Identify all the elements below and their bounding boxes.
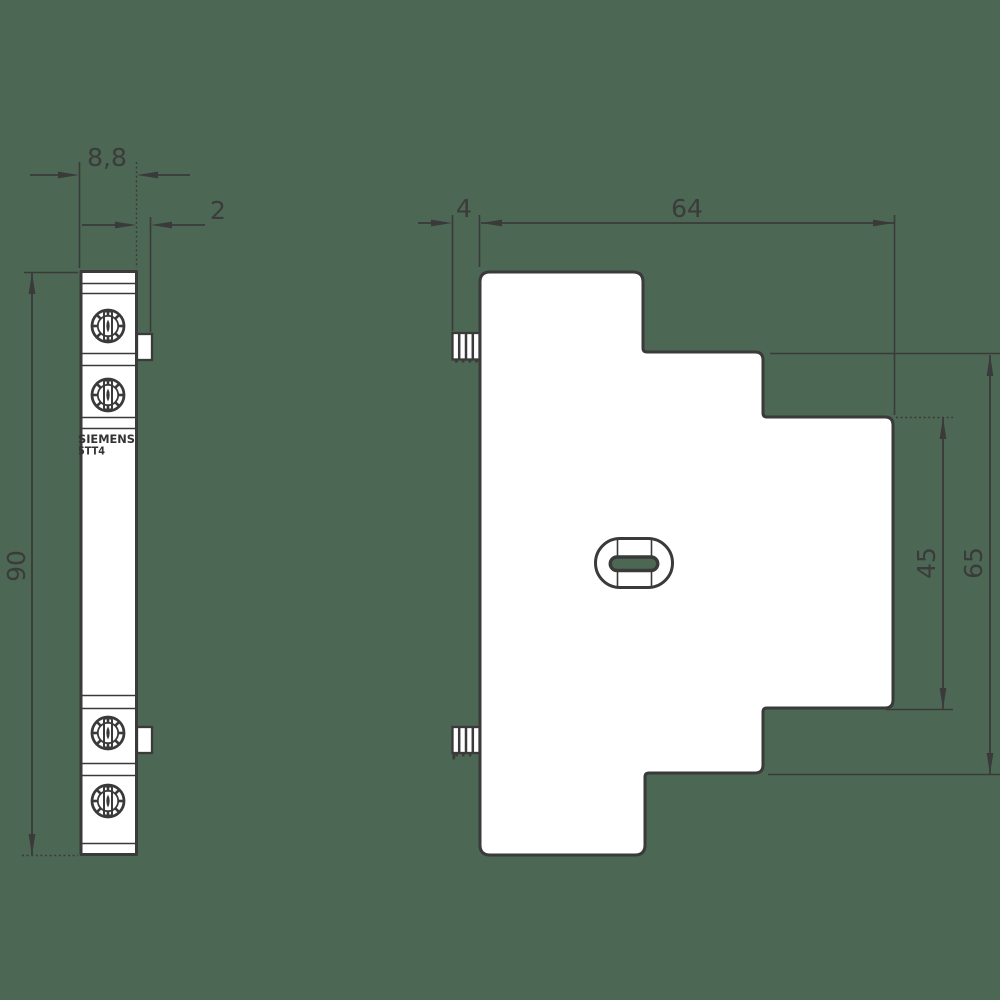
side-view-top-rail-tab	[453, 333, 480, 363]
front-view-body	[81, 272, 137, 855]
dimension-front-width: 8,8	[30, 143, 190, 268]
dimension-side-rail-tab: 4	[418, 194, 472, 331]
side-view-bottom-rail-tab	[453, 727, 480, 759]
side-view-body	[480, 272, 893, 855]
side-depth-value: 64	[671, 194, 703, 223]
brand-label: SIEMENS	[78, 432, 135, 446]
fixing-slot	[596, 539, 673, 588]
front-tab-value: 2	[210, 196, 226, 225]
side-rail-tab-value: 4	[456, 194, 472, 223]
technical-drawing-canvas: SIEMENS 5TT4	[0, 0, 1000, 1000]
side-height-value: 65	[959, 547, 988, 579]
fixing-slot-hole	[610, 557, 658, 571]
front-view-top-tab	[137, 334, 152, 360]
side-view	[453, 272, 894, 855]
front-width-value: 8,8	[87, 143, 127, 172]
side-step-height-value: 45	[912, 547, 941, 579]
front-view: SIEMENS 5TT4	[78, 272, 152, 855]
front-height-value: 90	[2, 550, 31, 582]
screw-terminal	[92, 310, 124, 342]
dimension-drawing: SIEMENS 5TT4	[0, 0, 1000, 1000]
dimension-side-step-height: 45	[886, 418, 953, 710]
model-label: 5TT4	[78, 446, 105, 458]
screw-terminal	[92, 785, 124, 817]
screw-terminal	[92, 379, 124, 411]
front-view-bottom-tab	[137, 727, 152, 753]
screw-terminal	[92, 717, 124, 749]
dimension-front-height: 90	[2, 273, 78, 856]
